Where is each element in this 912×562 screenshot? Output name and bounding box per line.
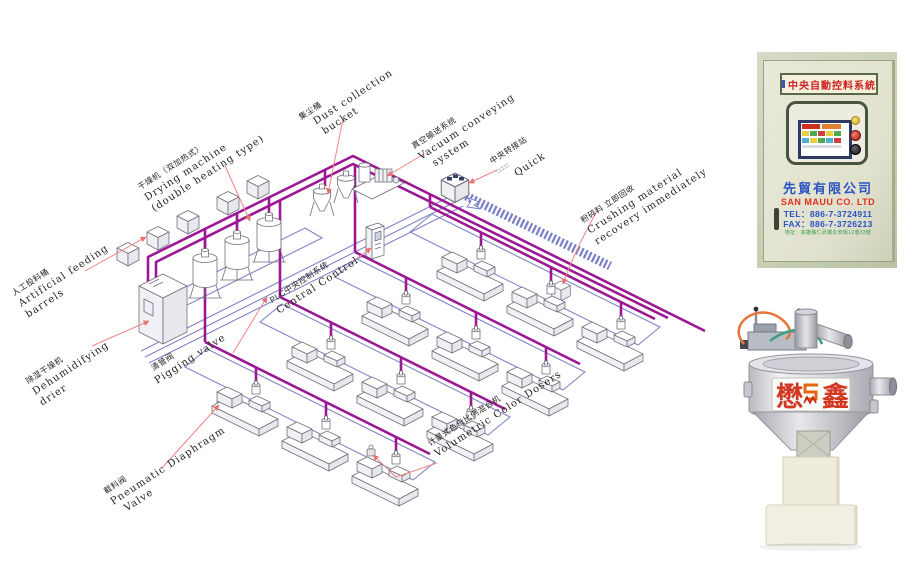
touch-screen — [798, 120, 852, 159]
brand-label: 懋 鑫 — [772, 378, 850, 412]
hopper-cone — [753, 412, 869, 457]
label-en: Pneumatic Diaphragm — [109, 425, 228, 507]
control-cabinet-photo: 中央自動控料系統 — [757, 52, 897, 268]
drying-hopper — [220, 231, 254, 282]
feeding-barrel — [147, 227, 169, 251]
color-doser — [367, 445, 375, 456]
feeding-barrel — [177, 211, 199, 235]
molding-machine — [352, 451, 418, 506]
molding-machine — [432, 326, 498, 381]
molding-machine — [362, 291, 428, 346]
company-fax: FAX：886-7-3726213 — [764, 219, 892, 230]
label-en: Crushing material — [586, 167, 685, 237]
company-tel: TEL：886-7-3724911 — [764, 209, 892, 220]
label-dust-collection: 集尘桶 Dust collection bucket — [297, 57, 403, 143]
feeding-barrel — [247, 176, 269, 200]
process-diagram: 人工投料桶 Artificial feeding barrels 干燥机（双加热… — [0, 0, 760, 562]
label-small: □□□□ — [496, 162, 511, 175]
label-pneumatic-valve: 截料阀 Pneumatic Diaphragm Valve — [102, 414, 235, 518]
screen-bezel — [786, 101, 868, 165]
brand-char-left: 懋 — [776, 382, 803, 412]
inlet-pipes — [795, 309, 852, 349]
label-en: Quick — [512, 151, 547, 179]
label-drying-machine: 干燥机（双加热式） Drying machine (double heating… — [136, 111, 267, 214]
dehumidifying-dryer — [139, 274, 187, 344]
molding-machine — [577, 316, 643, 371]
push-button-black — [850, 144, 861, 155]
screen-graphics — [801, 123, 843, 150]
label-vacuum-conveying: 真空输送系统 Vacuum conveying system — [409, 81, 524, 174]
dust-collector — [310, 184, 334, 216]
molding-machine — [357, 371, 423, 426]
clamp-right — [870, 400, 878, 413]
brand-char-right: 鑫 — [822, 381, 849, 412]
label-crushing: 粉碎料 立即回收 Crushing material recovery imme… — [579, 144, 710, 247]
feeding-barrel — [117, 243, 139, 267]
pedestal-base — [759, 457, 863, 551]
drying-hopper — [188, 249, 222, 300]
company-address: 地址：高雄縣仁武鄉永安街12巷33號 — [764, 230, 892, 236]
label-zh: 中央转接站 — [488, 134, 529, 166]
label-artificial-feeding: 人工投料桶 Artificial feeding barrels — [9, 232, 118, 321]
hopper-drum: 懋 鑫 — [744, 354, 897, 420]
company-name-zh: 先貿有限公司 — [764, 181, 892, 197]
plaque-text: 中央自動控料系統 — [788, 77, 876, 92]
cabinet-plaque: 中央自動控料系統 — [780, 73, 878, 95]
molding-machine — [287, 336, 353, 391]
plc-control-panel — [366, 223, 384, 259]
indicator-lamp-yellow — [851, 116, 860, 125]
indicator-lamp-red — [850, 130, 861, 141]
page: 人工投料桶 Artificial feeding barrels 干燥机（双加热… — [0, 0, 912, 562]
clamp-left — [744, 382, 752, 397]
central-transfer-station — [441, 173, 469, 202]
label-dehumidifying: 除湿干燥机 Dehumidifying drier — [24, 329, 119, 408]
molding-machine — [282, 416, 348, 471]
feeding-barrel — [217, 192, 239, 216]
label-central-transfer: 中央转接站 □□□□ Quick — [488, 131, 548, 187]
hopper-machine: 懋 鑫 — [739, 307, 897, 551]
cabinet-body: 中央自動控料系統 — [763, 60, 895, 262]
cabinet-text-block: 先貿有限公司 SAN MAUU CO. LTD TEL：886-7-372491… — [764, 181, 892, 236]
company-name-en: SAN MAUU CO. LTD — [764, 197, 892, 208]
plaque-logo-icon — [782, 80, 785, 88]
molding-machine — [437, 246, 503, 301]
vacuum-hopper-photo: 懋 鑫 — [720, 298, 910, 554]
